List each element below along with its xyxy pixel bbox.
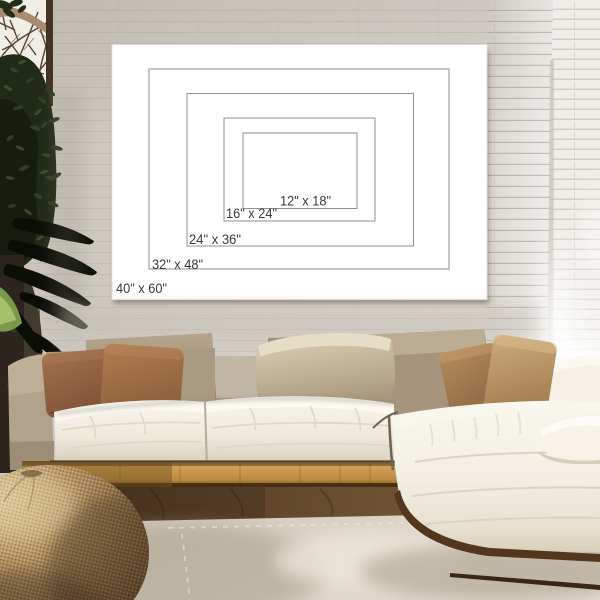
svg-text:12" x 18": 12" x 18" bbox=[280, 193, 331, 209]
svg-text:40" x 60": 40" x 60" bbox=[116, 280, 167, 296]
svg-text:32" x 48": 32" x 48" bbox=[152, 256, 203, 272]
svg-text:16" x 24": 16" x 24" bbox=[226, 205, 277, 221]
svg-text:24" x 36": 24" x 36" bbox=[189, 231, 241, 247]
